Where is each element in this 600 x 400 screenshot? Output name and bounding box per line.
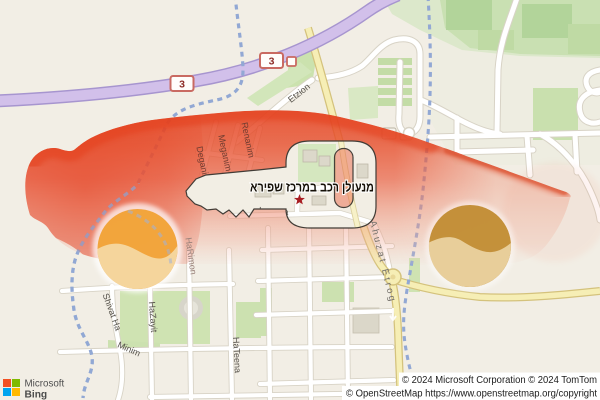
svg-text:Microsoft: Microsoft bbox=[25, 379, 65, 390]
svg-text:© OpenStreetMap https://www.op: © OpenStreetMap https://www.openstreetma… bbox=[346, 389, 597, 400]
svg-text:מנעולן רכב במרכז שפירא: מנעולן רכב במרכז שפירא bbox=[250, 180, 374, 195]
svg-text:3: 3 bbox=[179, 79, 185, 91]
svg-text:HaTeena: HaTeena bbox=[231, 337, 243, 374]
svg-text:3: 3 bbox=[269, 56, 275, 68]
svg-text:© 2024 Microsoft Corporation ©: © 2024 Microsoft Corporation © 2024 TomT… bbox=[402, 375, 597, 386]
svg-text:Bing: Bing bbox=[25, 390, 48, 400]
